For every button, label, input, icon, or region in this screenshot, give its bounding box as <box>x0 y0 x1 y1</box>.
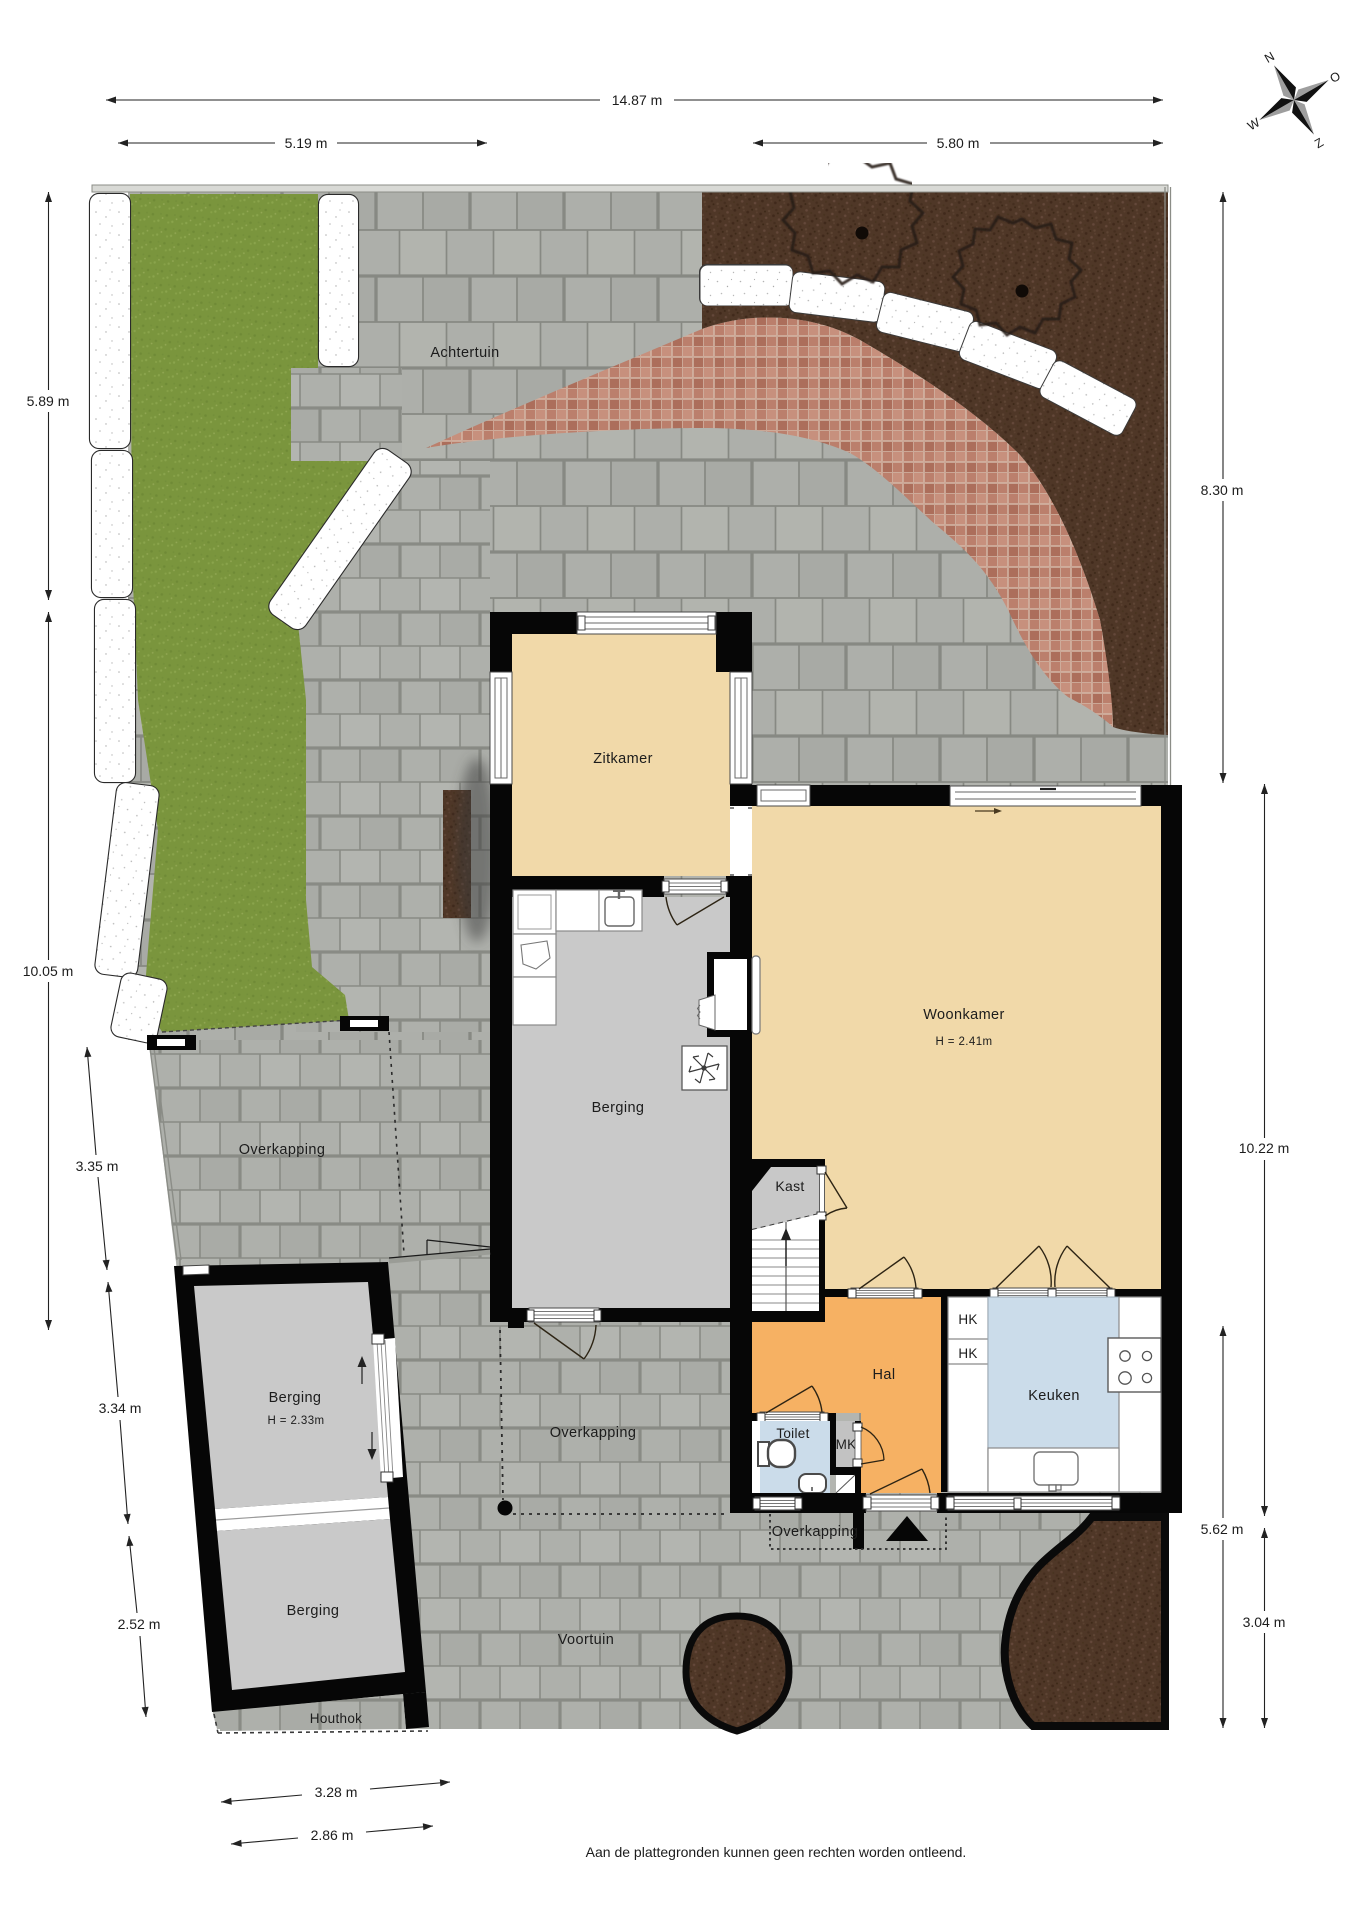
svg-text:MK: MK <box>836 1437 857 1452</box>
svg-text:Aan de plattegronden kunnen ge: Aan de plattegronden kunnen geen rechten… <box>586 1844 967 1860</box>
svg-text:5.89 m: 5.89 m <box>27 393 70 409</box>
svg-text:3.34 m: 3.34 m <box>99 1400 142 1416</box>
svg-text:Hal: Hal <box>873 1367 896 1383</box>
svg-text:3.28 m: 3.28 m <box>315 1784 358 1800</box>
svg-text:Berging: Berging <box>287 1603 340 1619</box>
svg-text:5.19 m: 5.19 m <box>285 135 328 151</box>
svg-text:10.22 m: 10.22 m <box>1239 1140 1290 1156</box>
svg-text:Achtertuin: Achtertuin <box>430 345 499 361</box>
svg-text:Toilet: Toilet <box>776 1426 809 1441</box>
svg-text:3.04 m: 3.04 m <box>1243 1614 1286 1630</box>
svg-text:Woonkamer: Woonkamer <box>923 1007 1005 1023</box>
svg-text:5.80 m: 5.80 m <box>937 135 980 151</box>
svg-text:14.87 m: 14.87 m <box>612 92 663 108</box>
svg-text:Berging: Berging <box>269 1390 322 1406</box>
svg-text:Houthok: Houthok <box>310 1711 362 1726</box>
svg-text:3.35 m: 3.35 m <box>76 1158 119 1174</box>
svg-text:2.52 m: 2.52 m <box>118 1616 161 1632</box>
svg-text:10.05 m: 10.05 m <box>23 963 74 979</box>
svg-text:HK: HK <box>958 1312 977 1327</box>
svg-text:Berging: Berging <box>592 1100 645 1116</box>
svg-text:Overkapping: Overkapping <box>550 1425 637 1441</box>
svg-text:Zitkamer: Zitkamer <box>593 751 653 767</box>
svg-text:8.30 m: 8.30 m <box>1201 482 1244 498</box>
svg-text:HK: HK <box>958 1346 977 1361</box>
svg-text:2.86 m: 2.86 m <box>311 1827 354 1843</box>
svg-text:Kast: Kast <box>775 1178 804 1194</box>
svg-text:Overkapping: Overkapping <box>772 1524 859 1540</box>
svg-text:Overkapping: Overkapping <box>239 1142 326 1158</box>
svg-text:5.62 m: 5.62 m <box>1201 1521 1244 1537</box>
svg-text:Keuken: Keuken <box>1028 1388 1080 1404</box>
svg-text:Voortuin: Voortuin <box>558 1632 614 1648</box>
svg-text:H = 2.33m: H = 2.33m <box>268 1415 325 1427</box>
svg-text:H = 2.41m: H = 2.41m <box>936 1036 993 1048</box>
